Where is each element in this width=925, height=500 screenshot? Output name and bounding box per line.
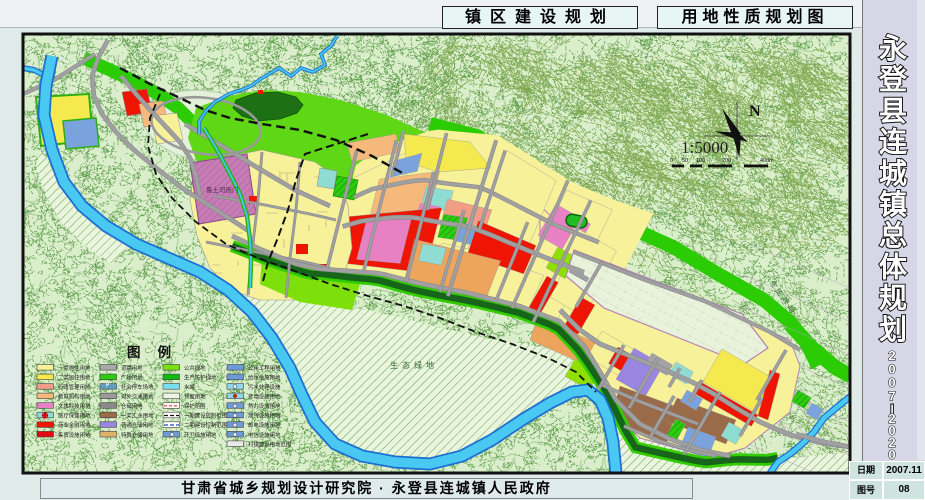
svg-text:热力设施用地: 热力设施用地: [248, 402, 281, 410]
svg-text:城: 城: [879, 158, 907, 189]
svg-text:变电设施用地: 变电设施用地: [248, 393, 281, 401]
svg-text:二期建设控制范围: 二期建设控制范围: [184, 421, 227, 429]
svg-text:规: 规: [879, 283, 907, 314]
svg-text:电信设施用地: 电信设施用地: [248, 431, 281, 439]
svg-text:一期建设控制范围: 一期建设控制范围: [184, 412, 227, 420]
svg-text:保护范围: 保护范围: [184, 402, 206, 410]
svg-text:登: 登: [878, 64, 908, 95]
svg-text:广场用地: 广场用地: [121, 373, 143, 381]
svg-text:社会停车场地: 社会停车场地: [121, 383, 154, 391]
svg-text:公用工程用地: 公用工程用地: [248, 364, 281, 372]
svg-text:划: 划: [879, 314, 907, 345]
svg-text:给水设施用地: 给水设施用地: [248, 373, 281, 381]
svg-text:0: 0: [888, 447, 895, 462]
svg-text:县: 县: [879, 95, 907, 126]
svg-text:水域: 水域: [184, 383, 195, 391]
svg-text:商业金融用地: 商业金融用地: [58, 421, 91, 429]
svg-text:连: 连: [879, 127, 908, 158]
svg-text:体: 体: [879, 251, 908, 282]
svg-text:公共绿地: 公共绿地: [184, 364, 206, 372]
svg-text:村镇建设用地范围: 村镇建设用地范围: [248, 440, 291, 448]
svg-text:镇: 镇: [879, 189, 907, 220]
svg-text:图例: 图例: [127, 344, 188, 360]
svg-text:二类居住用地: 二类居住用地: [58, 373, 91, 381]
svg-text:教育机构用地: 教育机构用地: [58, 393, 91, 401]
svg-text:永: 永: [879, 33, 907, 64]
svg-text:文体科技用地: 文体科技用地: [58, 402, 91, 410]
svg-text:道路用地: 道路用地: [121, 364, 143, 372]
svg-text:污水处理设施: 污水处理设施: [248, 383, 281, 391]
svg-text:一类居住用地: 一类居住用地: [58, 364, 91, 372]
svg-text:邮电设施用地: 邮电设施用地: [248, 421, 281, 429]
svg-text:总: 总: [879, 220, 907, 251]
svg-text:行政管理用地: 行政管理用地: [58, 383, 91, 391]
svg-text:普通仓储用地: 普通仓储用地: [121, 421, 154, 429]
svg-text:预留用地: 预留用地: [184, 393, 206, 401]
svg-text:集贸设施用地: 集贸设施用地: [58, 431, 91, 439]
svg-text:燃气设施用地: 燃气设施用地: [248, 412, 281, 420]
svg-text:一类工业用地: 一类工业用地: [121, 412, 154, 420]
svg-text:7: 7: [888, 389, 895, 404]
svg-text:特殊仓储用地: 特殊仓储用地: [121, 431, 154, 439]
svg-text:医疗保健用地: 医疗保健用地: [58, 412, 91, 420]
svg-text:仓储用地: 仓储用地: [121, 402, 143, 410]
svg-text:生产防护绿地: 生产防护绿地: [184, 373, 217, 381]
svg-text:对外交通用地: 对外交通用地: [121, 393, 154, 401]
svg-text:环卫设施用地: 环卫设施用地: [184, 431, 217, 439]
